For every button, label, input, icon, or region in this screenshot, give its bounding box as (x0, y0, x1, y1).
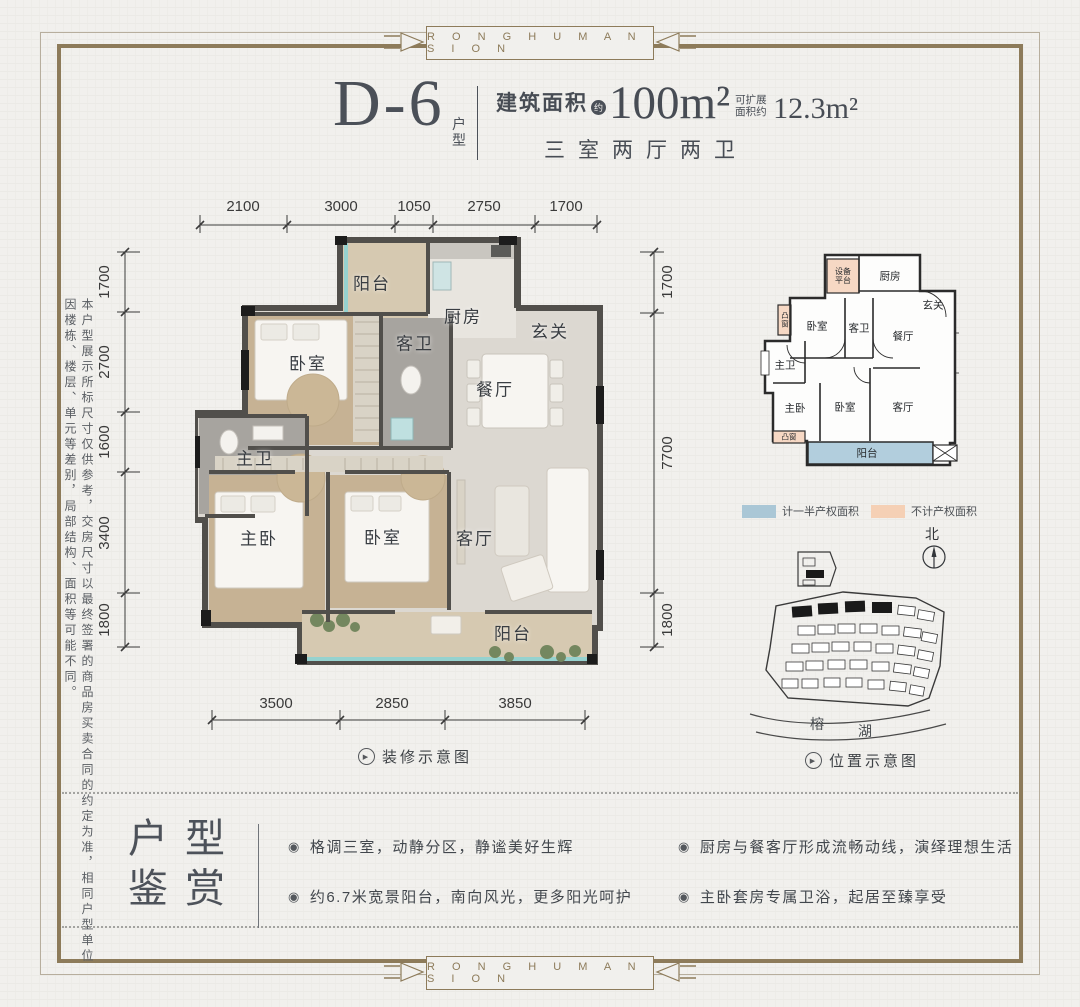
header-divider (477, 86, 478, 160)
legend-label: 计一半产权面积 (782, 503, 859, 519)
brand-box-bottom: R O N G H U M A N S I O N (426, 956, 654, 990)
dims-top: 2100 3000 1050 2750 1700 (195, 195, 605, 233)
arrow-left-icon (384, 961, 426, 983)
dim-label: 1700 (549, 198, 582, 215)
room-label-master-bath: 主卫 (236, 445, 274, 470)
arrow-right-icon (654, 961, 696, 983)
appreciation-title-line2: 鉴赏 (128, 864, 242, 914)
dim-label: 7700 (659, 436, 676, 469)
room-label-bedroom-top: 卧室 (289, 350, 327, 375)
location-caption: 位置示意图 (748, 750, 976, 771)
schem-label-bay-window-top: 凸窗 (780, 312, 791, 329)
schem-label-bay-window-bottom: 凸窗 (782, 432, 797, 443)
dim-label: 2700 (96, 345, 113, 378)
dim-label: 1800 (659, 603, 676, 636)
expandable-area-value: 12.3m² (773, 94, 858, 124)
dashed-divider-bottom (62, 926, 1018, 928)
expandable-area-label: 可扩展面积约 (735, 94, 769, 118)
disclaimer-text: 本户型展示所标尺寸仅供参考，交房尺寸以最终签署的商品房买卖合同的约定为准，相同户… (62, 298, 96, 966)
arrow-left-icon (384, 31, 426, 53)
legend-no-property: 不计产权面积 (871, 503, 977, 519)
room-label-bedroom-second: 卧室 (364, 524, 402, 549)
brand-text: R O N G H U M A N S I O N (427, 961, 653, 985)
room-label-guest-bath: 客卫 (396, 330, 434, 355)
unit-code: D-6 (333, 66, 445, 142)
siteplan-graphic (748, 548, 976, 748)
unit-code-suffix: 户型 (452, 116, 468, 148)
dashed-divider-top (62, 792, 1018, 794)
dim-label: 1800 (96, 603, 113, 636)
area-label: 建筑面积 (496, 87, 588, 117)
dim-label: 1600 (96, 425, 113, 458)
bullet-icon (288, 890, 301, 903)
schem-label-foyer: 玄关 (923, 298, 944, 313)
appreciation-title: 户型 鉴赏 (128, 814, 242, 914)
legend-label: 不计产权面积 (911, 503, 977, 519)
feature-bullet: 主卧套房专属卫浴，起居至臻享受 (678, 886, 947, 907)
siteplan: 榕 湖 (748, 548, 976, 748)
schem-label-equipment: 设备平台 (834, 267, 852, 285)
feature-bullet: 约6.7米宽景阳台，南向风光，更多阳光呵护 (288, 886, 632, 907)
north-label: 北 (925, 524, 939, 544)
lake-name-char1: 榕 (810, 714, 824, 734)
schem-label-living-room: 客厅 (893, 400, 914, 415)
area-info: 建筑面积 约 100m² 可扩展面积约 12.3m² (496, 80, 858, 127)
schem-label-kitchen: 厨房 (880, 269, 901, 284)
rooms-summary: 三室两厅两卫 (496, 134, 796, 164)
brand-text: R O N G H U M A N S I O N (427, 31, 653, 55)
bullet-icon (678, 890, 691, 903)
location-caption-text: 位置示意图 (829, 750, 919, 771)
lake-name-char2: 湖 (858, 721, 872, 741)
appreciation-title-line1: 户型 (128, 814, 242, 864)
bullet-icon (288, 840, 301, 853)
legend-swatch-blue (742, 505, 776, 518)
room-label-kitchen: 厨房 (444, 303, 482, 328)
dim-label: 1700 (96, 265, 113, 298)
bullet-icon (678, 840, 691, 853)
feature-text: 厨房与餐客厅形成流畅动线，演绎理想生活 (700, 836, 1014, 857)
schem-label-bedroom-second: 卧室 (835, 400, 856, 415)
room-label-balcony-top: 阳台 (353, 270, 391, 295)
feature-text: 格调三室，动静分区，静谧美好生辉 (310, 836, 574, 857)
dim-label: 3000 (324, 198, 357, 215)
schem-label-balcony: 阳台 (857, 446, 878, 461)
arrow-right-icon (654, 31, 696, 53)
built-area-value: 100m² (609, 80, 730, 127)
feature-text: 约6.7米宽景阳台，南向风光，更多阳光呵护 (310, 886, 632, 907)
dim-label: 2750 (467, 198, 500, 215)
dim-label: 1050 (397, 198, 430, 215)
approx-badge: 约 (591, 100, 606, 115)
feature-bullet: 厨房与餐客厅形成流畅动线，演绎理想生活 (678, 836, 1013, 857)
decor-caption-text: 装修示意图 (382, 746, 472, 767)
room-label-foyer: 玄关 (531, 318, 569, 343)
feature-bullet: 格调三室，动静分区，静谧美好生辉 (288, 836, 574, 857)
dim-label: 3400 (96, 516, 113, 549)
feature-text: 主卧套房专属卫浴，起居至臻享受 (700, 886, 948, 907)
dim-label: 1700 (659, 265, 676, 298)
main-floorplan: 阳台 厨房 玄关 卧室 客卫 餐厅 主卫 主卧 卧室 客厅 阳台 (195, 230, 650, 702)
room-label-balcony-bottom: 阳台 (494, 620, 532, 645)
dim-label: 2100 (226, 198, 259, 215)
dims-left: 1700 2700 1600 3400 1800 (95, 240, 140, 660)
decor-caption: 装修示意图 (195, 746, 635, 767)
schem-label-guest-bath: 客卫 (849, 321, 870, 336)
legend-half-property: 计一半产权面积 (742, 503, 859, 519)
room-label-master-bedroom: 主卧 (240, 525, 278, 550)
play-icon (358, 748, 375, 765)
schem-label-dining: 餐厅 (893, 329, 914, 344)
schem-label-master-bedroom: 主卧 (785, 401, 806, 416)
schem-label-bedroom-top: 卧室 (807, 319, 828, 334)
schem-label-master-bath: 主卫 (775, 358, 796, 373)
legend-swatch-orange (871, 505, 905, 518)
play-icon (805, 752, 822, 769)
brand-box-top: R O N G H U M A N S I O N (426, 26, 654, 60)
appreciation-divider (258, 824, 259, 928)
schematic-floorplan: 设备平台 厨房 玄关 凸窗 卧室 客卫 餐厅 主卫 主卧 卧室 客厅 凸窗 阳台 (745, 243, 973, 475)
floorplan-poster: R O N G H U M A N S I O N R O N G H U M … (0, 0, 1080, 1007)
room-label-dining: 餐厅 (476, 376, 514, 401)
room-label-living-room: 客厅 (456, 525, 494, 550)
